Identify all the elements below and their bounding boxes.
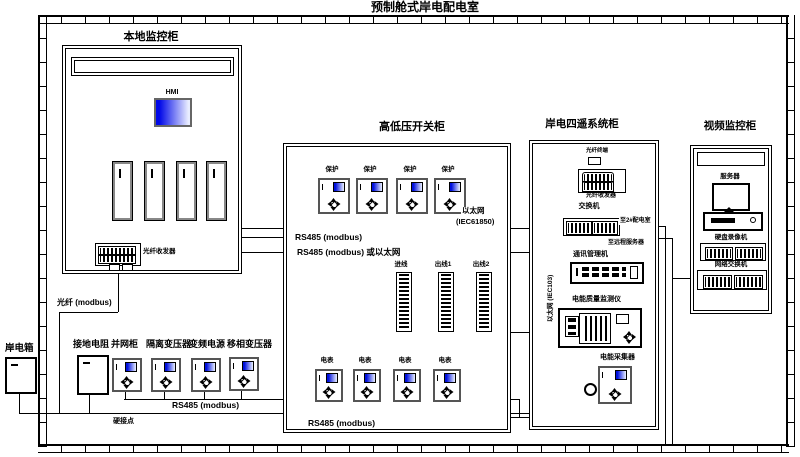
local-cabinet-inner-border — [65, 48, 239, 271]
hmi-screen — [154, 98, 192, 127]
bottom-rs485-label: RS485 (modbus) — [171, 401, 240, 410]
hmi-label: HMI — [166, 89, 179, 97]
relay-label: 保护 — [404, 166, 417, 173]
shore-box — [5, 357, 37, 394]
fiber-transceiver-device — [95, 243, 141, 266]
video-top-bar — [697, 152, 765, 166]
rs485-bus-label: RS485 (modbus) — [294, 233, 363, 242]
wire-to-room2 — [665, 226, 666, 444]
wall-right — [786, 15, 795, 447]
fiber-terminal-label: 光纤终端 — [586, 148, 608, 154]
net-switch-device — [697, 270, 767, 290]
transceiver-foot — [109, 264, 120, 271]
siyao-fiber-transceiver-label: 光纤收发器 — [586, 193, 616, 200]
energy-meter — [315, 369, 343, 402]
module-handle — [213, 169, 215, 178]
comm-manager-tick — [576, 268, 578, 276]
transceiver-foot — [122, 264, 133, 271]
dvr-label: 硬盘录像机 — [715, 234, 748, 241]
protection-relay — [318, 178, 350, 214]
phase-shift-transformer-label: 移相变压器 — [227, 340, 272, 350]
vfd-power-device — [191, 358, 221, 392]
energy-meter — [353, 369, 381, 402]
collector-device — [598, 366, 632, 404]
collector-connector — [584, 383, 597, 396]
ground-resistor-label: 接地电阻 — [73, 340, 109, 350]
strip-label-in: 进线 — [395, 261, 408, 268]
local-cabinet-label: 本地监控柜 — [124, 31, 179, 43]
ethernet-switch-device — [563, 218, 620, 236]
switch-ports — [592, 221, 618, 235]
ethernet-iec103-label: 以太网 (IEC103) — [544, 275, 554, 322]
shore-box-mark — [11, 364, 18, 366]
hard-contact-label: 硬接点 — [112, 418, 135, 426]
meter-label: 电表 — [321, 357, 334, 364]
isolation-transformer-label: 隔离变压器 — [146, 340, 191, 350]
server-slot — [711, 218, 735, 223]
protection-relay — [356, 178, 388, 214]
relay-label: 保护 — [442, 166, 455, 173]
pq-left-ports — [565, 316, 579, 337]
server-button — [750, 217, 756, 223]
dvr-ports — [735, 247, 763, 260]
fiber-ports-row — [98, 254, 136, 264]
module-handle — [151, 169, 153, 178]
comm-manager-bars — [582, 267, 626, 271]
ground-resistor-mark — [83, 362, 90, 364]
meter-label: 电表 — [359, 357, 372, 364]
strip-label-out2: 出线2 — [473, 261, 490, 268]
fiber-modbus-label: 光纤 (modbus) — [56, 299, 113, 308]
isolation-transformer-device — [151, 358, 181, 392]
pq-monitor-device — [558, 308, 642, 348]
local-cabinet-top-bar — [71, 57, 234, 76]
wire-to-remote — [672, 238, 673, 444]
vfd-power-label: 变频电源 — [189, 340, 225, 350]
wall-bottom — [38, 444, 789, 453]
fiber-terminal-box — [588, 157, 601, 165]
net-switch-ports — [734, 275, 763, 289]
to-remote-server-label: 至远程服务器 — [607, 240, 645, 247]
video-cabinet-label: 视频监控柜 — [704, 121, 757, 133]
phase-shift-transformer-device — [229, 357, 259, 391]
io-module — [145, 162, 164, 220]
top-bar-inner — [74, 60, 231, 73]
module-handle — [119, 169, 121, 178]
shore-power-room-diagram: 预制舱式岸电配电室 — [0, 0, 800, 457]
ground-resistor-box — [77, 355, 109, 395]
siyao-fiber-transceiver — [578, 169, 626, 193]
pq-pad — [623, 331, 636, 344]
terminal-strip-out2 — [476, 272, 492, 332]
comm-manager-bars — [582, 273, 626, 277]
local-cabinet-box — [62, 45, 242, 274]
energy-meter — [393, 369, 421, 402]
energy-meter — [433, 369, 461, 402]
switch-ports — [566, 221, 592, 235]
pq-screen — [616, 314, 629, 324]
terminal-strip-out1 — [438, 272, 454, 332]
net-switch-ports — [703, 275, 732, 289]
iec61850-label: (IEC61850) — [455, 218, 495, 226]
wire-fiber — [59, 312, 118, 313]
protection-relay — [396, 178, 428, 214]
io-module — [207, 162, 226, 220]
grid-cabinet-device — [112, 358, 142, 392]
comm-manager-port — [630, 266, 638, 279]
comm-manager-device — [570, 262, 644, 284]
ethernet-label: 以太网 — [461, 207, 486, 215]
terminal-strip-in — [396, 272, 412, 332]
rs485-or-ethernet-label: RS485 (modbus) 或以太网 — [296, 248, 401, 257]
wire — [519, 399, 520, 417]
wall-top — [38, 15, 789, 24]
switch-label: 交换机 — [579, 203, 600, 211]
relay-label: 保护 — [326, 166, 339, 173]
net-switch-label: 网络交换机 — [715, 261, 748, 268]
dvr-device — [700, 243, 766, 261]
server-chassis — [703, 212, 763, 231]
meter-rs485-label: RS485 (modbus) — [307, 419, 376, 428]
collector-label: 电能采集器 — [600, 354, 635, 362]
grid-cabinet-label: 并网柜 — [111, 340, 138, 350]
pq-monitor-label: 电能质量监测仪 — [572, 296, 621, 304]
wire-fiber — [118, 268, 119, 312]
diagram-title: 预制舱式岸电配电室 — [371, 1, 479, 14]
to-room2-label: 至2#配电室 — [619, 218, 652, 225]
switchgear-label: 高低压开关柜 — [379, 121, 445, 133]
pq-grille — [579, 313, 611, 344]
dvr-ports — [705, 247, 733, 260]
io-module — [177, 162, 196, 220]
wire-fiber — [59, 312, 60, 413]
strip-label-out1: 出线1 — [435, 261, 452, 268]
fiber-ports-row — [582, 181, 614, 192]
comm-manager-label: 通讯管理机 — [573, 251, 608, 259]
meter-label: 电表 — [399, 357, 412, 364]
server-label: 服务器 — [720, 173, 740, 180]
shore-box-label: 岸电箱 — [5, 344, 34, 354]
pq-tick — [610, 316, 611, 321]
meter-label: 电表 — [439, 357, 452, 364]
io-module — [113, 162, 132, 220]
relay-label: 保护 — [364, 166, 377, 173]
wall-left — [38, 15, 47, 447]
siyao-cabinet-label: 岸电四遥系统柜 — [545, 119, 619, 131]
fiber-transceiver-label: 光纤收发器 — [142, 248, 177, 255]
module-handle — [183, 169, 185, 178]
